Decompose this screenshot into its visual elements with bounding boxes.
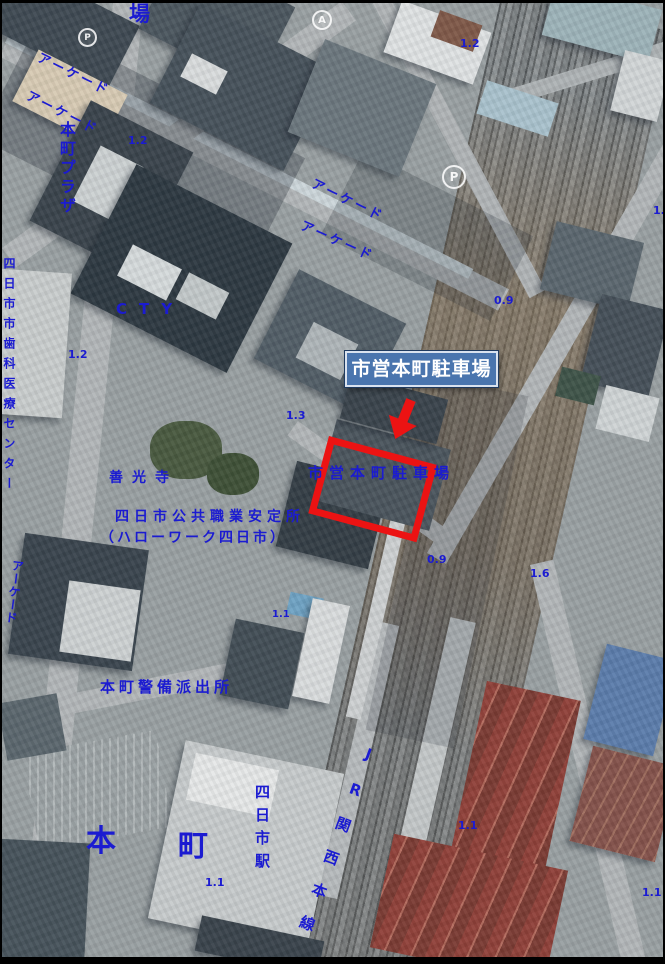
map-label: アーケード [298,220,376,264]
map-label: JR関西本線 [290,743,378,951]
map-label: CTY [116,302,184,317]
map-label: 四日市市歯科医療センター [3,257,15,497]
map-label: 1.6 [530,568,550,579]
map-label: アーケード [309,178,386,224]
map-label: 1.2 [68,349,88,360]
map-label: 町 [178,832,208,862]
map-label: 1.1 [272,610,290,620]
map-label: 1.1 [642,887,662,898]
map-label: 0.9 [427,554,447,565]
map-label: 本町プラザ [58,121,74,216]
map-label: 本 [86,827,116,857]
map-label: 0.9 [494,295,514,306]
map-label: 1.2 [128,135,148,146]
aerial-photo: PAP 場アーケードアーケード本町プラザ1.21.2アーケードアーケード1.四日… [2,3,663,957]
parking-callout: 市営本町駐車場 [345,351,498,387]
map-label: 1.1 [458,820,478,831]
map-labels-layer: 場アーケードアーケード本町プラザ1.21.2アーケードアーケード1.四日市市歯科… [2,3,663,957]
map-label: （ハローワーク四日市） [100,531,287,545]
map-label: 1.1 [205,877,225,888]
map-label: 四日市公共職業安定所 [115,510,305,524]
map-label: 場 [129,4,150,25]
map-label: 四日市駅 [254,784,269,876]
map-label: 市営本町駐車場 [308,466,455,481]
map-label: 1. [653,205,663,216]
map-label: 1.2 [460,38,480,49]
map-label: 本町警備派出所 [100,680,233,695]
parking-callout-label: 市営本町駐車場 [351,360,491,379]
map-label: アーケード [35,52,112,98]
photo-frame: PAP 場アーケードアーケード本町プラザ1.21.2アーケードアーケード1.四日… [0,0,665,964]
map-label: アーケード [4,559,24,625]
map-label: 1.3 [286,410,306,421]
map-label: 善光寺 [109,471,178,485]
